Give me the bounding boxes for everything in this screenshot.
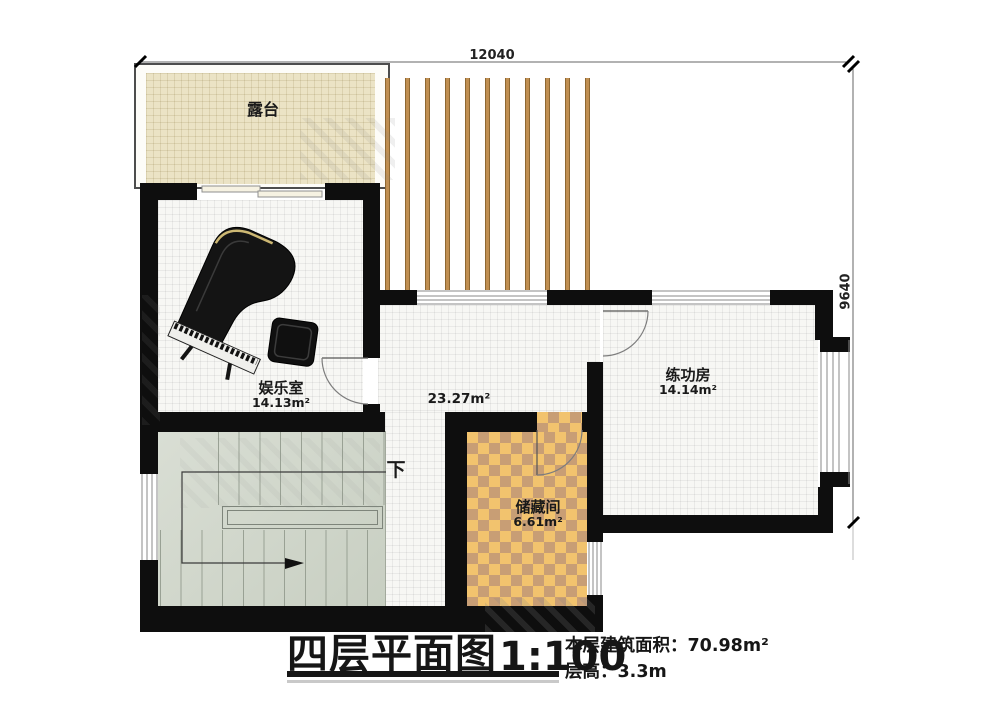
terrace-sliding-door (202, 186, 322, 197)
title-underline-shadow (287, 680, 559, 683)
dimension-lines (140, 62, 853, 560)
window-practice-right (818, 340, 849, 484)
floor-height-note: 层高：3.3m (565, 658, 667, 683)
storage-room-area: 6.61m² (513, 516, 562, 529)
door-practice (603, 311, 648, 356)
practice-room-label: 练功房 (665, 368, 710, 383)
windows (140, 290, 849, 595)
door-storage (537, 430, 582, 475)
plan-linework (0, 0, 1000, 706)
practice-room-area: 14.14m² (659, 384, 717, 397)
floor-area-note: 本层建筑面积：70.98m² (565, 632, 769, 657)
hall-area: 23.27m² (428, 393, 491, 407)
floor-plan-canvas: 露台 娱乐室 14.13m² 23.27m² 练功房 14.14m² 储藏间 6… (0, 0, 1000, 706)
entertainment-room-area: 14.13m² (252, 397, 310, 410)
terrace-label: 露台 (247, 102, 279, 118)
dimension-right-label: 9640 (840, 273, 853, 309)
stair-direction-arrow (285, 558, 304, 569)
entertainment-room-label: 娱乐室 (258, 381, 303, 396)
window-hall-top (417, 290, 547, 305)
stair-down-label: 下 (386, 461, 405, 480)
window-stair-left (140, 474, 158, 560)
door-entertainment (322, 358, 368, 404)
piano-bench (267, 317, 319, 367)
window-storage-right (587, 542, 603, 595)
storage-room-label: 储藏间 (515, 500, 560, 515)
title-underline (287, 671, 559, 677)
dimension-top-label: 12040 (469, 49, 514, 62)
stair-direction-path (182, 472, 386, 563)
window-practice-top (652, 290, 770, 305)
